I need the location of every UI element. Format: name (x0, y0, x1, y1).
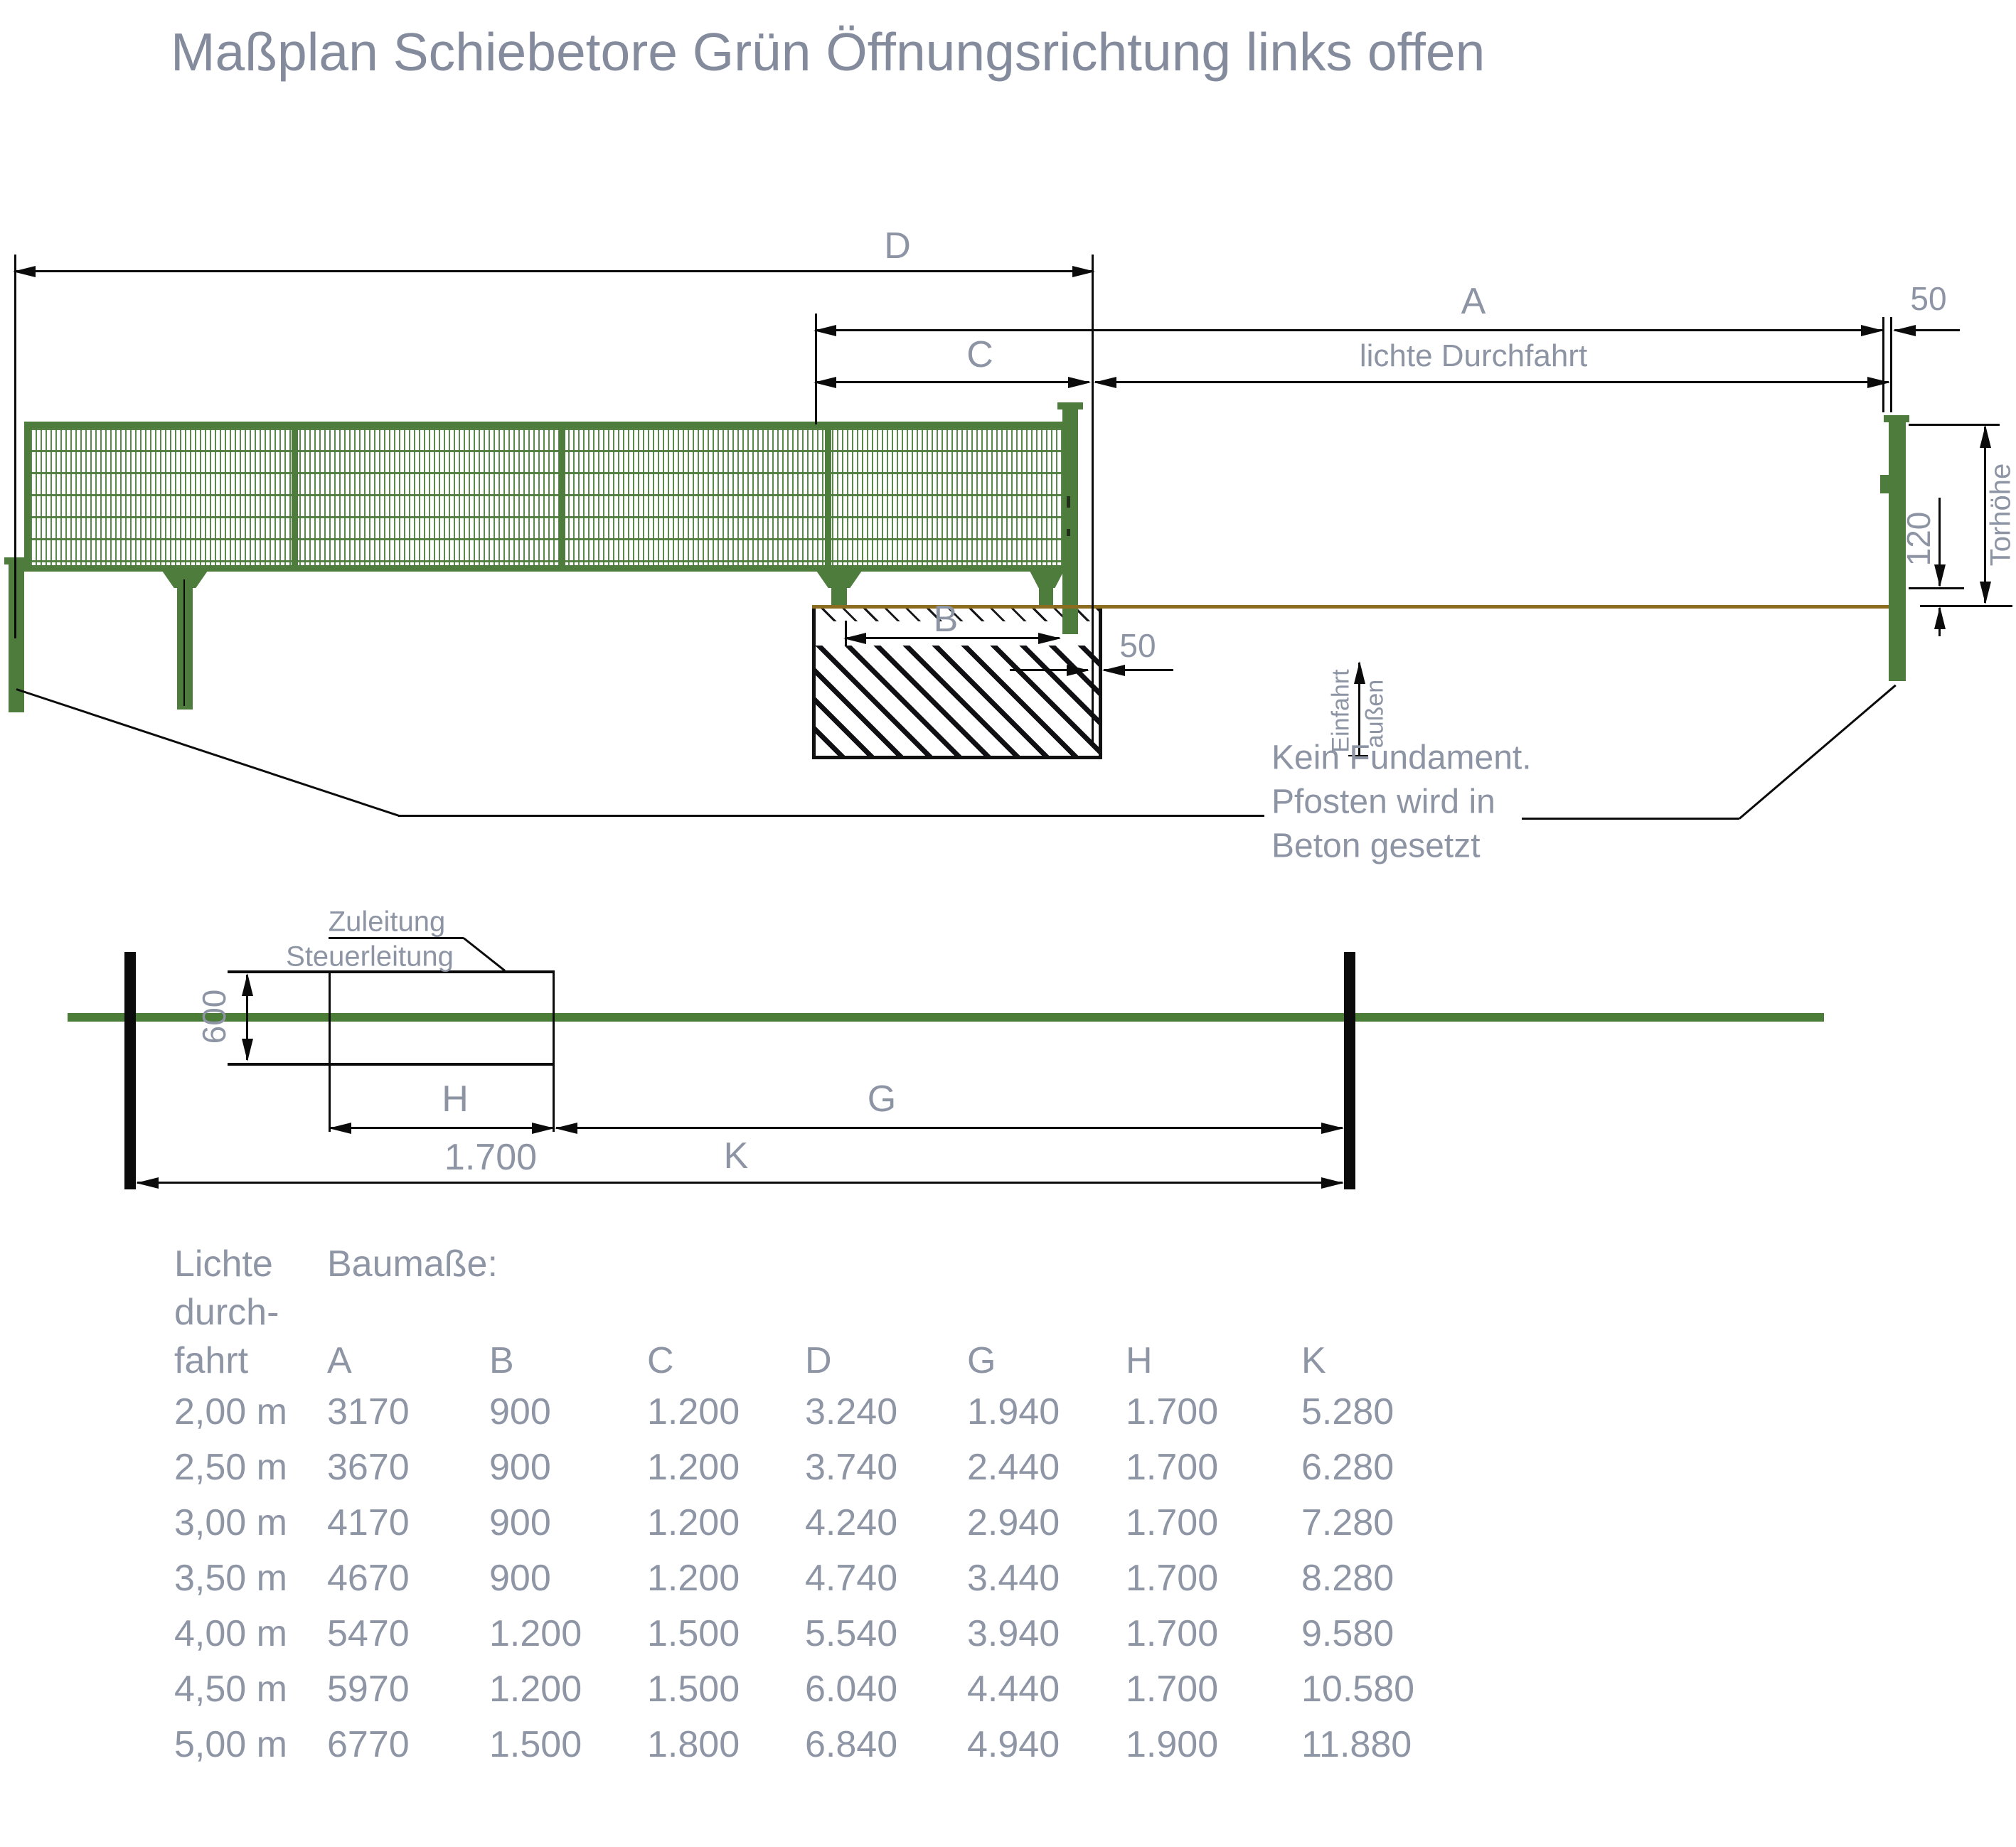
column-header: G (967, 1339, 996, 1382)
dimension-line-h (330, 1127, 553, 1129)
control-line-label: Steuerleitung (286, 941, 454, 973)
clear-passage-label: lichte Durchfahrt (1360, 338, 1587, 374)
reference-line-gate-bottom (1909, 587, 1964, 589)
fence-line (68, 1013, 1824, 1022)
gate-foot-stem (177, 588, 193, 710)
note-line-3: Beton gesetzt (1271, 827, 1481, 866)
cell-c: 1.200 (647, 1557, 740, 1600)
column-header: D (805, 1339, 832, 1382)
dimension-label-h: H (442, 1078, 469, 1120)
guide-post-middle (1062, 407, 1078, 634)
receiver-post-cap (1884, 415, 1909, 422)
diagram-canvas: Maßplan Schiebetore Grün Öffnungsrichtun… (0, 0, 2016, 1847)
extension-line-post-right (1890, 317, 1892, 412)
dimension-label-50-foundation: 50 (1119, 626, 1156, 665)
dimension-arrow-50-foundation-left (1010, 669, 1088, 671)
cell-b: 900 (489, 1557, 551, 1600)
cell-c: 1.200 (647, 1446, 740, 1489)
receiver-post-latch (1880, 475, 1889, 493)
extension-line-post-left (1882, 317, 1884, 412)
cell-h: 1.700 (1126, 1391, 1218, 1433)
cell-h: 1.700 (1126, 1501, 1218, 1544)
dimension-label-120: 120 (1899, 512, 1938, 567)
post-hardware-mark (1067, 496, 1070, 508)
dimension-label-g: G (868, 1078, 896, 1120)
cell-k: 10.580 (1301, 1668, 1414, 1711)
cell-c: 1.500 (647, 1612, 740, 1655)
dimension-label-50-post: 50 (1910, 279, 1946, 318)
cell-g: 4.940 (967, 1723, 1060, 1766)
gate-foot-bracket (816, 571, 862, 588)
note-leader-left-diagonal (16, 688, 399, 817)
dimension-label-k: K (724, 1135, 749, 1177)
dimension-line-c (815, 381, 1089, 383)
cell-h: 1.700 (1126, 1612, 1218, 1655)
cell-b: 900 (489, 1391, 551, 1433)
cell-g: 3.440 (967, 1557, 1060, 1600)
dimension-arrow-120-lower (1938, 608, 1941, 636)
gate-panel-divider (559, 428, 565, 565)
cell-k: 9.580 (1301, 1612, 1394, 1655)
dimension-line-600 (246, 975, 248, 1060)
cell-b: 900 (489, 1446, 551, 1489)
cable-leader-diagonal (463, 937, 506, 971)
cell-b: 900 (489, 1501, 551, 1544)
cell-c: 1.500 (647, 1668, 740, 1711)
cell-h: 1.700 (1126, 1557, 1218, 1600)
post-hardware-mark (1067, 529, 1070, 536)
row-header-line: durch- (174, 1291, 279, 1334)
dimension-label-d: D (884, 225, 911, 267)
cell-h: 1.900 (1126, 1723, 1218, 1766)
cell-g: 2.940 (967, 1501, 1060, 1544)
gate-foot-axis-line (183, 579, 185, 706)
cell-a: 5970 (327, 1668, 410, 1711)
page-title: Maßplan Schiebetore Grün Öffnungsrichtun… (171, 21, 1485, 82)
cell-c: 1.200 (647, 1501, 740, 1544)
slide-zone-left (329, 970, 331, 1132)
cell-a: 6770 (327, 1723, 410, 1766)
group-header: Baumaße: (327, 1243, 498, 1285)
dimension-arrow-50-foundation-right (1104, 669, 1173, 671)
cell-d: 6.040 (805, 1668, 897, 1711)
cell-k: 6.280 (1301, 1446, 1394, 1489)
cell-a: 4670 (327, 1557, 410, 1600)
extension-line-d-left (14, 255, 16, 638)
sliding-gate-leaf (24, 422, 1072, 572)
note-line-2: Pfosten wird in (1271, 783, 1495, 822)
column-header: A (327, 1339, 352, 1382)
dimension-line-g (556, 1127, 1343, 1129)
slide-zone-right (553, 970, 555, 1132)
cell-d: 3.740 (805, 1446, 897, 1489)
cell-a: 3170 (327, 1391, 410, 1433)
note-line-1: Kein Fundament. (1271, 739, 1532, 778)
gate-height-label: Torhöhe (1985, 464, 2016, 567)
cell-d: 5.540 (805, 1612, 897, 1655)
cell-a: 3670 (327, 1446, 410, 1489)
dimension-line-50-post (1894, 329, 1960, 331)
dimension-label-a: A (1461, 280, 1486, 323)
cell-c: 1.200 (647, 1391, 740, 1433)
column-header: C (647, 1339, 674, 1382)
note-leader-left (398, 815, 1264, 817)
note-leader-right (1522, 818, 1739, 820)
plan-post-right (1344, 952, 1355, 1189)
gate-foot-bracket (1030, 571, 1064, 588)
ground-line (812, 605, 1900, 609)
gate-foot-stem (831, 588, 847, 607)
cell-g: 2.440 (967, 1446, 1060, 1489)
cell-lichte: 3,50 m (174, 1557, 287, 1600)
cell-h: 1.700 (1126, 1668, 1218, 1711)
dimension-line-120 (1938, 498, 1941, 586)
row-header-line: Lichte (174, 1243, 273, 1285)
dimension-label-b: B (934, 598, 959, 641)
supply-line-label: Zuleitung (329, 906, 446, 938)
note-leader-right-diagonal (1739, 685, 1897, 820)
cell-h: 1.700 (1126, 1446, 1218, 1489)
cell-a: 5470 (327, 1612, 410, 1655)
column-header: B (489, 1339, 514, 1382)
row-header-line: fahrt (174, 1339, 248, 1382)
column-header: H (1126, 1339, 1153, 1382)
dimension-value-h: 1.700 (444, 1136, 537, 1179)
cell-d: 6.840 (805, 1723, 897, 1766)
column-header: K (1301, 1339, 1326, 1382)
dimension-label-600: 600 (195, 990, 233, 1044)
dimension-line-d (14, 270, 1094, 272)
cell-lichte: 3,00 m (174, 1501, 287, 1544)
cell-g: 3.940 (967, 1612, 1060, 1655)
cell-k: 5.280 (1301, 1391, 1394, 1433)
dimension-line-clear-passage (1095, 381, 1889, 383)
dimension-line-k (137, 1182, 1343, 1184)
cell-k: 7.280 (1301, 1501, 1394, 1544)
cell-d: 4.240 (805, 1501, 897, 1544)
cell-lichte: 4,00 m (174, 1612, 287, 1655)
gate-panel-divider (292, 428, 298, 565)
gate-panel-divider (825, 428, 831, 565)
cell-lichte: 4,50 m (174, 1668, 287, 1711)
cell-k: 11.880 (1301, 1723, 1412, 1766)
plan-post-left (124, 952, 136, 1189)
cell-d: 3.240 (805, 1391, 897, 1433)
slide-zone-bottom (228, 1063, 555, 1066)
gate-foot-bracket (162, 571, 208, 588)
cell-lichte: 2,00 m (174, 1391, 287, 1433)
dimension-line-a (815, 329, 1882, 331)
cell-lichte: 2,50 m (174, 1446, 287, 1489)
cell-lichte: 5,00 m (174, 1723, 287, 1766)
cell-b: 1.200 (489, 1612, 582, 1655)
cell-g: 1.940 (967, 1391, 1060, 1433)
cell-g: 4.440 (967, 1668, 1060, 1711)
cell-d: 4.740 (805, 1557, 897, 1600)
cell-b: 1.500 (489, 1723, 582, 1766)
cell-b: 1.200 (489, 1668, 582, 1711)
gate-foot-stem (1039, 588, 1053, 607)
cell-c: 1.800 (647, 1723, 740, 1766)
cell-k: 8.280 (1301, 1557, 1394, 1600)
cell-a: 4170 (327, 1501, 410, 1544)
foundation-hatch-main (816, 646, 1099, 756)
dimension-label-c: C (966, 333, 993, 376)
guide-post-middle-cap (1057, 402, 1083, 409)
extension-line-d-right (1092, 255, 1094, 745)
